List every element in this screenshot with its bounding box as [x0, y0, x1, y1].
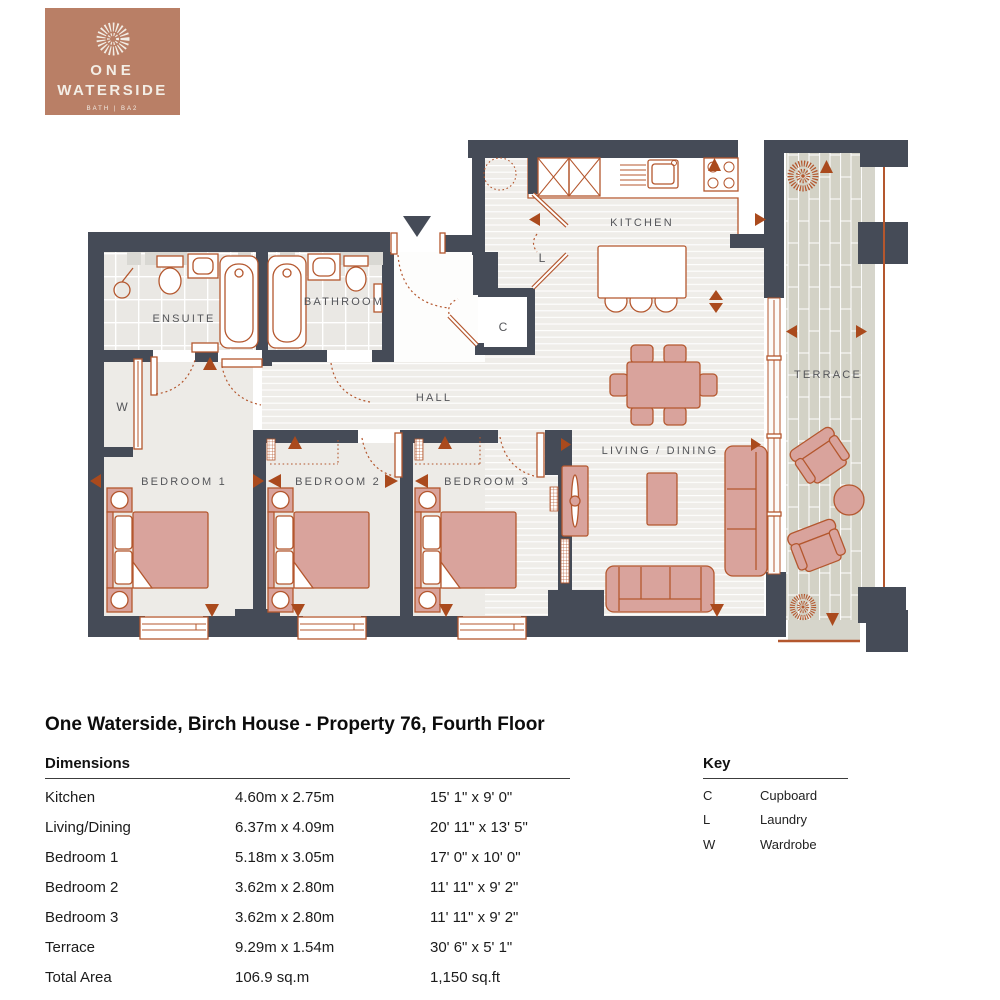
table-row: Living/Dining 6.37m x 4.09m 20' 11" x 13…	[45, 812, 570, 842]
imperial-size: 15' 1" x 9' 0"	[430, 782, 570, 812]
chair-icon	[610, 374, 628, 396]
terrace-glazing	[767, 298, 781, 574]
imperial-size: 11' 11" x 9' 2"	[430, 902, 570, 932]
table-row: Terrace 9.29m x 1.54m 30' 6" x 5' 1"	[45, 932, 570, 962]
metric-size: 106.9 sq.m	[235, 962, 430, 992]
table-row: Bedroom 2 3.62m x 2.80m 11' 11" x 9' 2"	[45, 872, 570, 902]
room-label-bedroom1: BEDROOM 1	[141, 476, 227, 488]
room-name: Terrace	[45, 932, 235, 962]
floorplan-page: ONE WATERSIDE BATH | BA2	[0, 0, 1000, 1000]
key-letter-wardrobe: W	[116, 400, 128, 414]
table-row: Bedroom 1 5.18m x 3.05m 17' 0" x 10' 0"	[45, 842, 570, 872]
room-label-living-dining: LIVING / DINING	[602, 445, 719, 457]
room-name: Bedroom 2	[45, 872, 235, 902]
list-item: L Laundry	[703, 808, 848, 833]
key-letter-laundry: L	[539, 251, 546, 265]
toilet-icon	[157, 256, 183, 267]
key-heading: Key	[703, 755, 848, 779]
key-code: L	[703, 808, 760, 833]
room-label-bedroom2: BEDROOM 2	[295, 476, 381, 488]
bedroom3-window	[458, 617, 526, 639]
room-name: Living/Dining	[45, 812, 235, 842]
dimensions-heading: Dimensions	[45, 755, 570, 779]
imperial-size: 30' 6" x 5' 1"	[430, 932, 570, 962]
key-label: Cupboard	[760, 783, 848, 808]
chair-icon	[631, 345, 653, 363]
bedroom2-window	[298, 617, 366, 639]
key-letter-cupboard: C	[499, 320, 508, 334]
list-item: C Cupboard	[703, 783, 848, 808]
room-label-ensuite: ENSUITE	[152, 313, 215, 325]
bedroom1-window	[140, 617, 208, 639]
list-item: W Wardrobe	[703, 832, 848, 857]
dimensions-section: Dimensions Kitchen 4.60m x 2.75m 15' 1" …	[45, 755, 570, 992]
metric-size: 6.37m x 4.09m	[235, 812, 430, 842]
table-row: Bedroom 3 3.62m x 2.80m 11' 11" x 9' 2"	[45, 902, 570, 932]
coffee-table-icon	[647, 473, 677, 525]
sofa-icon	[725, 446, 767, 576]
room-name: Bedroom 3	[45, 902, 235, 932]
chair-icon	[664, 345, 686, 363]
table-row: Kitchen 4.60m x 2.75m 15' 1" x 9' 0"	[45, 782, 570, 812]
imperial-size: 11' 11" x 9' 2"	[430, 872, 570, 902]
island-icon	[598, 246, 686, 298]
imperial-size: 1,150 sq.ft	[430, 962, 570, 992]
key-label: Laundry	[760, 808, 848, 833]
toilet-icon	[344, 256, 368, 266]
table-row: Total Area 106.9 sq.m 1,150 sq.ft	[45, 962, 570, 992]
room-label-terrace: TERRACE	[794, 369, 862, 381]
key-code: C	[703, 783, 760, 808]
imperial-size: 17' 0" x 10' 0"	[430, 842, 570, 872]
room-label-bedroom3: BEDROOM 3	[444, 476, 530, 488]
metric-size: 3.62m x 2.80m	[235, 872, 430, 902]
room-label-hall: HALL	[416, 392, 452, 404]
room-label-kitchen: KITCHEN	[610, 217, 674, 229]
key-section: Key C Cupboard L Laundry W Wardrobe	[703, 755, 848, 857]
imperial-size: 20' 11" x 13' 5"	[430, 812, 570, 842]
chair-icon	[631, 407, 653, 425]
room-name: Kitchen	[45, 782, 235, 812]
chair-icon	[699, 374, 717, 396]
round-table-icon	[834, 485, 864, 515]
dimensions-table: Kitchen 4.60m x 2.75m 15' 1" x 9' 0" Liv…	[45, 782, 570, 992]
floor-plan: KITCHEN LIVING / DINING HALL ENSUITE BAT…	[0, 0, 1000, 700]
key-table: C Cupboard L Laundry W Wardrobe	[703, 783, 848, 857]
metric-size: 4.60m x 2.75m	[235, 782, 430, 812]
metric-size: 9.29m x 1.54m	[235, 932, 430, 962]
room-name: Bedroom 1	[45, 842, 235, 872]
page-title: One Waterside, Birch House - Property 76…	[45, 714, 545, 736]
key-label: Wardrobe	[760, 832, 848, 857]
room-name: Total Area	[45, 962, 235, 992]
metric-size: 5.18m x 3.05m	[235, 842, 430, 872]
dining-table-icon	[627, 362, 700, 408]
room-label-bathroom: BATHROOM	[304, 296, 384, 308]
key-code: W	[703, 832, 760, 857]
chair-icon	[664, 407, 686, 425]
metric-size: 3.62m x 2.80m	[235, 902, 430, 932]
entrance-arrow	[403, 216, 431, 237]
sofa-icon	[606, 566, 714, 612]
